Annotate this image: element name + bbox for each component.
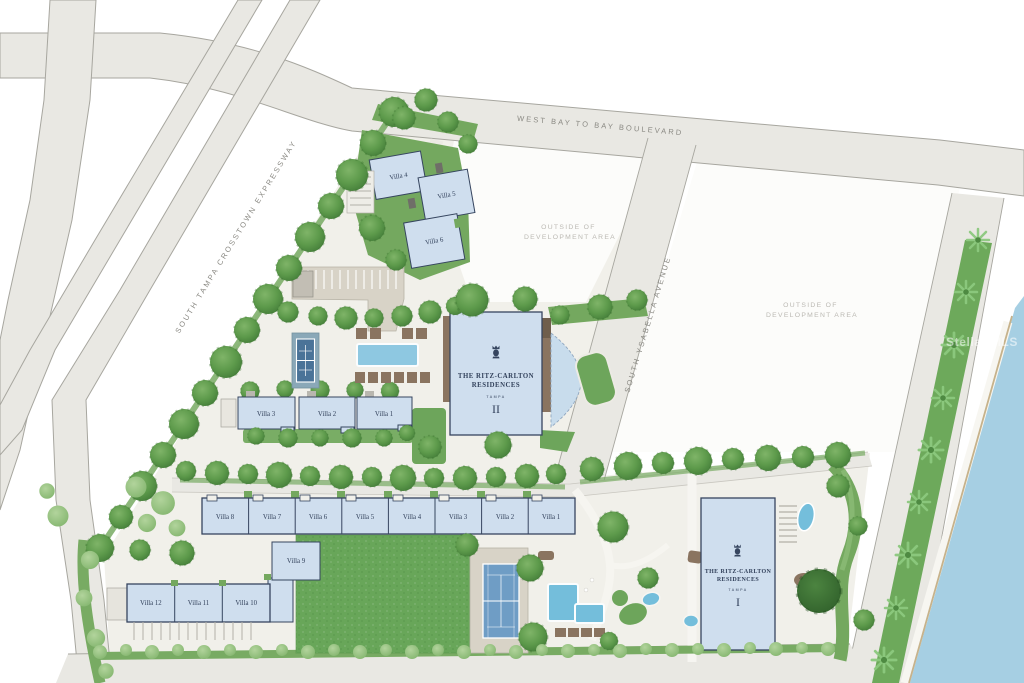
villas-long-row: Villa 8 Villa 7 Villa 6 Villa 5 Villa 4 …: [202, 491, 575, 534]
residences-tower-2: THE RITZ-CARLTON RESIDENCES TAMPA II: [443, 312, 551, 435]
tower-2-numeral: II: [492, 402, 500, 416]
lawn-texture: [296, 535, 470, 653]
tower-2-brand-line2: RESIDENCES: [472, 382, 520, 389]
site-plan-map: WEST BAY TO BAY BOULEVARD SOUTH TAMPA CR…: [0, 0, 1024, 683]
villa-mid-3-label: Villa 3: [257, 411, 276, 418]
villa-mid-2-label: Villa 2: [318, 411, 337, 418]
villa-12-label: Villa 12: [140, 600, 162, 607]
stellar-mls-watermark: Stellar MLS: [946, 335, 1018, 349]
villa-row-8-label: Villa 8: [216, 514, 235, 521]
tower-1-city: TAMPA: [728, 588, 747, 592]
tower-2-brand-line1: THE RITZ-CARLTON: [458, 373, 534, 380]
villa-9-wing: [268, 578, 293, 622]
villa-row-6-label: Villa 6: [309, 514, 328, 521]
villa-row-4-label: Villa 4: [403, 514, 422, 521]
tower-1-brand-line1: THE RITZ-CARLTON: [705, 569, 772, 575]
tennis-court-north: [292, 333, 319, 388]
villa-row-5-label: Villa 5: [356, 514, 375, 521]
villa-row-7-label: Villa 7: [263, 514, 282, 521]
villa-11-label: Villa 11: [188, 600, 209, 607]
site-plan-page: WEST BAY TO BAY BOULEVARD SOUTH TAMPA CR…: [0, 0, 1024, 683]
pool-north: [357, 344, 418, 366]
villa-9-label: Villa 9: [287, 558, 306, 565]
villa-row-1-label: Villa 1: [542, 514, 560, 521]
outside-area-2-line2: DEVELOPMENT AREA: [766, 312, 858, 319]
umbrella-dot: [584, 588, 588, 592]
outside-area-1-line1: OUTSIDE OF: [541, 224, 596, 231]
tower-1-numeral: I: [736, 595, 740, 609]
villa-row-2-label: Villa 2: [496, 514, 515, 521]
tower-2-city: TAMPA: [486, 395, 505, 399]
park-green-blob-2: [612, 590, 628, 606]
villas-mid-row: Villa 3 Villa 2 Villa 1: [221, 391, 412, 433]
villa-10-label: Villa 10: [235, 600, 257, 607]
outside-area-1-line2: DEVELOPMENT AREA: [524, 234, 616, 241]
tower-1-parking-hatch: [779, 506, 797, 542]
umbrella-dot-2: [590, 578, 594, 582]
park-pond-2: [684, 615, 699, 627]
pool-south-main: [548, 584, 578, 621]
tennis-court-south: [483, 564, 519, 638]
tower-1-brand-line2: RESIDENCES: [717, 577, 760, 583]
villa-row-3-label: Villa 3: [449, 514, 468, 521]
pool-south-spa: [575, 604, 604, 623]
outside-area-2-line1: OUTSIDE OF: [783, 302, 838, 309]
villa-mid-1-label: Villa 1: [375, 411, 393, 418]
